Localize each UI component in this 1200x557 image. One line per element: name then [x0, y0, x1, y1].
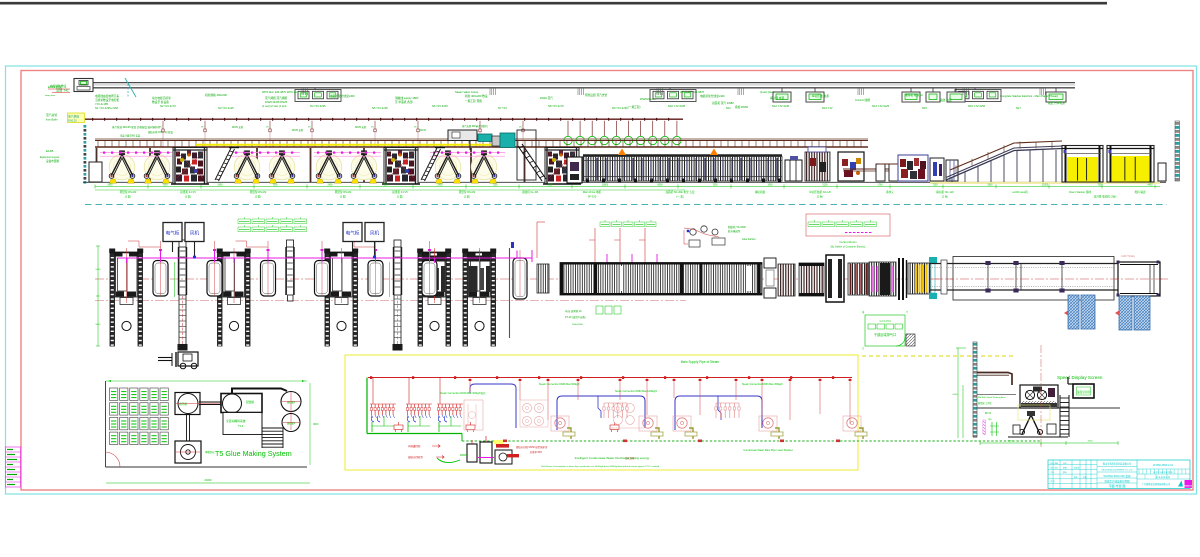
- svg-text:双面机 SF-20E 重型 五层: 双面机 SF-20E 重型 五层: [665, 190, 695, 194]
- svg-text:N9 YJV-4x50: N9 YJV-4x50: [612, 106, 628, 110]
- svg-text:(1set) (2set): (1set) (2set): [760, 90, 775, 94]
- svg-text:配胶罐: 配胶罐: [246, 400, 254, 404]
- svg-text:全自动糊料系统: 全自动糊料系统: [226, 419, 246, 423]
- svg-text:工艺: 工艺: [1051, 471, 1055, 474]
- svg-text:from Boiler: from Boiler: [46, 119, 58, 122]
- svg-text:N5 YJV-4x35: N5 YJV-4x35: [372, 106, 388, 110]
- svg-text:蒸汽总管: 蒸汽总管: [46, 113, 57, 117]
- svg-text:储胶罐2: 储胶罐2: [287, 421, 296, 425]
- svg-text:蒸汽阀组 蒸汽阀组: 蒸汽阀组 蒸汽阀组: [265, 96, 288, 100]
- svg-text:Equipment Layout: Equipment Layout: [40, 156, 60, 159]
- svg-text:(2 台): (2 台): [942, 195, 949, 199]
- svg-text:横切部 电源: 横切部 电源: [770, 96, 784, 100]
- svg-text:along here: along here: [45, 94, 56, 97]
- svg-text:5500: 5500: [1008, 441, 1014, 443]
- svg-text:横切机 NC-120: 横切机 NC-120: [936, 190, 954, 194]
- svg-text:一期工程 预留: 一期工程 预留: [465, 99, 482, 103]
- svg-text:纵切压线 电源: 纵切压线 电源: [812, 94, 829, 98]
- svg-text:凝结水回收 DN50 接至锅炉房: 凝结水回收 DN50 接至锅炉房: [516, 445, 548, 449]
- svg-text:凝结水回收泵: 凝结水回收泵: [408, 455, 424, 459]
- svg-text:Steam Valve Group: Steam Valve Group: [455, 90, 479, 94]
- svg-text:敷设至 各设备: 敷设至 各设备: [152, 100, 169, 104]
- svg-text:双升降 堆码机 (2台): 双升降 堆码机 (2台): [1094, 195, 1117, 199]
- svg-text:INDUSTRIAL EQUIPMENT CO.,LTD: INDUSTRIAL EQUIPMENT CO.,LTD: [1102, 469, 1133, 472]
- svg-text:至 单面机 各部: 至 单面机 各部: [395, 100, 413, 104]
- svg-text:E14B: E14B: [46, 149, 53, 153]
- svg-text:N16 YJV-4x50: N16 YJV-4x50: [968, 104, 986, 108]
- svg-text:薄膜泵站: 薄膜泵站: [205, 450, 215, 454]
- svg-text:N14 YJV-3x25: N14 YJV-3x25: [872, 104, 890, 108]
- svg-text:WJ250-2500-2-01: WJ250-2500-2-01: [1153, 464, 1174, 467]
- svg-text:Control Room: Control Room: [839, 240, 857, 244]
- svg-text:双面机 蒸汽 DN80: 双面机 蒸汽 DN80: [712, 101, 734, 105]
- svg-text:桥架 400x200 敷设: 桥架 400x200 敷设: [465, 94, 488, 98]
- svg-text:1400 T2/day: 1400 T2/day: [1121, 255, 1136, 258]
- svg-text:6000: 6000: [953, 394, 959, 396]
- svg-text:干部区域排气口: 干部区域排气口: [874, 332, 896, 337]
- svg-text:涂胶机 GL-D6: 涂胶机 GL-D6: [522, 190, 539, 194]
- svg-text:TS-6: TS-6: [238, 425, 244, 428]
- svg-text:(By Gather or Customer Electri: (By Gather or Customer Electric): [831, 246, 866, 249]
- svg-text:N1 YJV-3x95+1x50: N1 YJV-3x95+1x50: [95, 106, 119, 110]
- svg-text:Steam Connection DN50,Max 450k: Steam Connection DN50,Max 450kg/h: [742, 383, 783, 386]
- svg-text:N2 YJV-3x70: N2 YJV-3x70: [160, 104, 176, 108]
- svg-text:Steam Connection DN80,Max 900k: Steam Connection DN80,Max 900kg/h: [539, 383, 580, 386]
- svg-text:横切机组: 横切机组: [755, 190, 766, 194]
- svg-text:储胶罐1: 储胶罐1: [287, 400, 296, 404]
- svg-text:N13 YJV: N13 YJV: [822, 106, 833, 110]
- svg-text:7150: 7150: [932, 184, 938, 186]
- svg-text:9000: 9000: [313, 423, 319, 426]
- svg-text:风机: 风机: [370, 230, 380, 237]
- svg-text:DN32: DN32: [420, 130, 427, 132]
- svg-text:DN25x9 each: DN25x9 each: [640, 97, 657, 101]
- svg-text:蒸汽管道 DN125 保温 沿墙架设 坡向锅炉房: 蒸汽管道 DN125 保温 沿墙架设 坡向锅炉房: [112, 125, 161, 129]
- svg-text:N4 YJV-3x95: N4 YJV-3x95: [310, 104, 326, 108]
- svg-text:滑触线 supply 380V: 滑触线 supply 380V: [395, 96, 419, 100]
- svg-text:5150: 5150: [822, 184, 828, 186]
- svg-text:2870-3km 226-3870 2870-3km: 2870-3km 226-3870 2870-3km: [262, 90, 300, 94]
- svg-text:1760: 1760: [877, 184, 883, 186]
- svg-text:18500: 18500: [602, 184, 609, 186]
- svg-text:WJ250A-2500-1SF 瓦楞: WJ250A-2500-1SF 瓦楞: [1104, 474, 1131, 478]
- svg-text:原纸架 RS-M2: 原纸架 RS-M2: [335, 190, 352, 194]
- svg-text:纵切压线机 NC-H5: 纵切压线机 NC-H5: [809, 190, 831, 194]
- svg-text:(一期工程): (一期工程): [628, 105, 641, 109]
- svg-text:2800: 2800: [547, 184, 553, 186]
- svg-text:Intelligent Condensate Water D: Intelligent Condensate Water Discharge s…: [575, 456, 650, 460]
- svg-text:叠加 DN50: 叠加 DN50: [735, 105, 748, 109]
- svg-text:电气柜: 电气柜: [166, 230, 180, 237]
- svg-text:DN125: DN125: [68, 119, 77, 123]
- svg-text:N6 YJV-3x50: N6 YJV-3x50: [432, 104, 448, 108]
- svg-text:风机: 风机: [190, 230, 200, 237]
- svg-text:N15: N15: [922, 106, 927, 110]
- svg-text:1900: 1900: [767, 184, 773, 186]
- svg-text:Total Steam Consumption at abo: Total Steam Consumption at about 4pcs pr…: [541, 465, 660, 468]
- svg-text:5000: 5000: [96, 324, 102, 326]
- svg-text:电缆桥架分线盒x400: 电缆桥架分线盒x400: [700, 94, 725, 98]
- svg-text:7500: 7500: [1097, 184, 1103, 186]
- svg-text:E141 桥架: E141 桥架: [48, 84, 62, 89]
- svg-text:7500: 7500: [272, 184, 278, 186]
- svg-text:(2 套): (2 套): [464, 195, 471, 199]
- svg-text:口: 口: [862, 347, 864, 350]
- svg-text:堆码 输送: 堆码 输送: [1134, 190, 1146, 194]
- svg-text:纸板生产线设备布置图: 纸板生产线设备布置图: [1104, 479, 1130, 483]
- svg-text:9000: 9000: [657, 184, 663, 186]
- svg-text:YJV-4x185: YJV-4x185: [95, 102, 109, 106]
- svg-text:N12 YJV-4x35: N12 YJV-4x35: [772, 104, 790, 108]
- svg-text:搅拌罐: 搅拌罐: [179, 402, 187, 406]
- svg-text:BF.±0: BF.±0: [985, 412, 992, 415]
- svg-text:2500: 2500: [1088, 441, 1094, 443]
- svg-text:N3 YJV 4x25: N3 YJV 4x25: [218, 106, 234, 110]
- svg-text:N17: N17: [1016, 106, 1021, 110]
- svg-text:Steam Connection DN40,Max 300k: Steam Connection DN40,Max 300kg/h每台: [440, 391, 486, 395]
- svg-text:Speed Display Screen: Speed Display Screen: [1057, 375, 1103, 380]
- svg-text:叠单元: 叠单元: [886, 190, 894, 194]
- svg-text:N10 YJV-3x95: N10 YJV-3x95: [668, 104, 686, 108]
- svg-text:Steam Connection DN80,Max 1200: Steam Connection DN80,Max 1200kg/h: [615, 390, 658, 393]
- svg-text:KT-40 (由用户自备): KT-40 (由用户自备): [565, 315, 586, 319]
- svg-text:Complete Stacker Electrics - M: Complete Stacker Electrics - Main Paper …: [1000, 94, 1058, 98]
- svg-text:设备布置图: 设备布置图: [46, 159, 59, 163]
- svg-text:沿桥架敷设至电控柜: 沿桥架敷设至电控柜: [95, 98, 119, 102]
- svg-text:7150: 7150: [492, 184, 498, 186]
- svg-text:原纸架 RS-M2: 原纸架 RS-M2: [120, 190, 137, 194]
- svg-text:2450: 2450: [217, 184, 223, 186]
- svg-text:速度显示屏: 速度显示屏: [1077, 390, 1090, 394]
- svg-text:5000: 5000: [96, 269, 102, 271]
- svg-text:车间 送风机 x6: 车间 送风机 x6: [565, 309, 582, 313]
- svg-text:2450: 2450: [107, 184, 113, 186]
- svg-text:N11: N11: [726, 106, 731, 110]
- svg-text:7500: 7500: [162, 184, 168, 186]
- svg-text:原纸架 RS-M2: 原纸架 RS-M2: [250, 190, 267, 194]
- svg-text:(2 套): (2 套): [125, 195, 132, 199]
- svg-text:(2 套): (2 套): [255, 195, 262, 199]
- svg-text:DN40 蒸汽: DN40 蒸汽: [540, 96, 553, 100]
- svg-text:电气柜: 电气柜: [346, 230, 360, 237]
- svg-text:输送 电源: 输送 电源: [940, 98, 952, 102]
- svg-text:Condensate Water Main Pipe Low: Condensate Water Main Pipe Lower Bracket: [743, 449, 793, 452]
- svg-text:接纸机 ZJ-V5: 接纸机 ZJ-V5: [392, 190, 408, 194]
- svg-text:胶水输送泵: 胶水输送泵: [728, 229, 741, 233]
- svg-text:电缆桥架分线盒x300: 电缆桥架分线盒x300: [330, 94, 355, 98]
- svg-text:Mill Roll Stand Working Area: Mill Roll Stand Working Area: [978, 396, 1006, 399]
- svg-text:(一 套): (一 套): [676, 195, 684, 199]
- svg-text:2870-3km 226-3870: 2870-3km 226-3870: [680, 90, 705, 94]
- svg-text:11000: 11000: [1042, 184, 1049, 186]
- svg-text:Down Stacker 落地: Down Stacker 落地: [1069, 190, 1091, 194]
- svg-text:2450: 2450: [437, 184, 443, 186]
- svg-text:SF-320: SF-320: [588, 195, 597, 199]
- svg-text:Main Drive 电机: Main Drive 电机: [583, 190, 602, 194]
- svg-text:(2 套): (2 套): [340, 195, 347, 199]
- svg-text:2450: 2450: [327, 184, 333, 186]
- svg-text:堆码机 电源 x2: 堆码机 电源 x2: [905, 93, 923, 97]
- svg-text:Glue Kitchen: Glue Kitchen: [742, 238, 756, 241]
- svg-text:Control 线槽: Control 线槽: [855, 98, 870, 102]
- svg-text:N7 YJV: N7 YJV: [498, 106, 507, 110]
- svg-text:闪蒸罐回收: 闪蒸罐回收: [408, 444, 421, 448]
- svg-text:(2 套): (2 套): [397, 195, 404, 199]
- svg-text:制胶机 TS-1500: 制胶机 TS-1500: [728, 225, 746, 229]
- svg-text:接纸机 ZJ-V5: 接纸机 ZJ-V5: [180, 190, 196, 194]
- svg-text:(2 台): (2 台): [817, 195, 824, 199]
- svg-text:2800: 2800: [987, 184, 993, 186]
- svg-text:DN25 DN25 DN25: DN25 DN25 DN25: [265, 100, 288, 104]
- svg-text:平面 布置 图: 平面 布置 图: [1109, 483, 1126, 488]
- svg-text:a-b00 pass机: a-b00 pass机: [1012, 190, 1028, 194]
- svg-text:T5 Glue Making System: T5 Glue Making System: [215, 449, 292, 458]
- svg-text:1500x1500: 1500x1500: [572, 324, 584, 326]
- svg-text:原纸架 RS-M2: 原纸架 RS-M2: [459, 190, 476, 194]
- svg-text:7500: 7500: [382, 184, 388, 186]
- svg-text:24000: 24000: [204, 478, 212, 482]
- svg-text:4450: 4450: [1147, 184, 1153, 186]
- svg-text:凝结水管 DN50 同 架设: 凝结水管 DN50 同 架设: [148, 130, 173, 134]
- svg-text:N8 YJV-3x70: N8 YJV-3x70: [548, 104, 564, 108]
- svg-text:预热缸组 蒸汽支管: 预热缸组 蒸汽支管: [585, 93, 608, 97]
- svg-text:动力电缆沿桥架: 动力电缆沿桥架: [152, 96, 171, 100]
- svg-text:(1 set) (2 set) (1 set): (1 set) (2 set) (1 set): [262, 104, 286, 108]
- svg-text:Main Supply Pipe of Steam: Main Supply Pipe of Steam: [681, 360, 720, 364]
- svg-text:桥架规格 400x200: 桥架规格 400x200: [205, 93, 227, 97]
- svg-text:电源线由变电所引来: 电源线由变电所引来: [95, 94, 119, 98]
- svg-text:(2 套): (2 套): [185, 195, 192, 199]
- svg-text:7500: 7500: [712, 184, 718, 186]
- svg-text:1 2 3 4 5 6: 1 2 3 4 5 6: [879, 320, 891, 323]
- svg-text:收纸 升降电源: 收纸 升降电源: [1048, 101, 1065, 105]
